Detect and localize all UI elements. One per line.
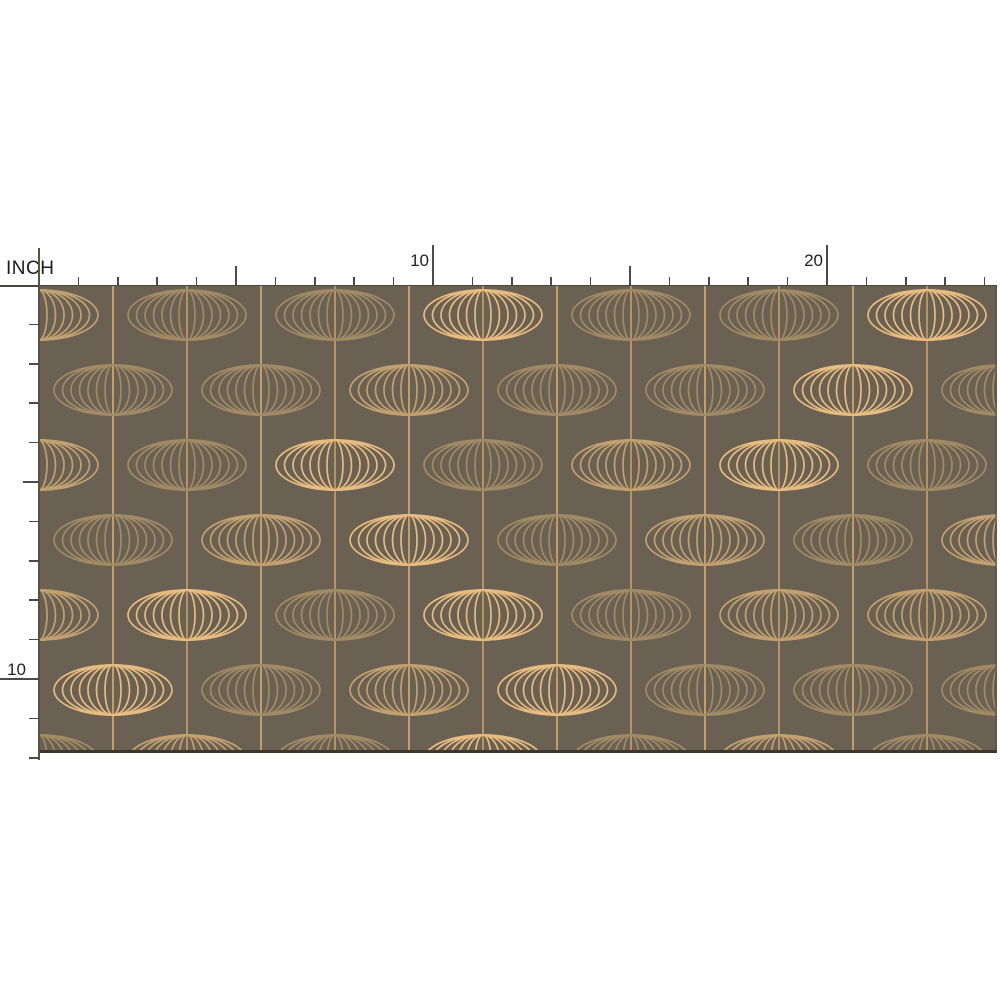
ruler-top-tick bbox=[353, 277, 355, 285]
ruler-top-tick bbox=[984, 277, 986, 285]
ruler-left-tick bbox=[29, 324, 39, 326]
fabric-swatch bbox=[40, 286, 997, 752]
ruler-left-tick bbox=[29, 639, 39, 641]
ruler-top-tick bbox=[747, 277, 749, 285]
ruler-top-number: 10 bbox=[407, 251, 429, 271]
ruler-left-number: 10 bbox=[2, 660, 26, 680]
ruler-left-tick bbox=[29, 363, 39, 365]
ruler-left-tick bbox=[29, 442, 39, 444]
ruler-top-tick bbox=[826, 245, 828, 285]
ruler-left-tick bbox=[29, 521, 39, 523]
ruler-top-tick bbox=[275, 277, 277, 285]
ruler-left-tick bbox=[29, 718, 39, 720]
ruler-top-tick bbox=[472, 277, 474, 285]
ruler-top-tick bbox=[314, 277, 316, 285]
ruler-top-tick bbox=[432, 245, 434, 285]
swatch-right-edge-shadow bbox=[995, 286, 997, 751]
ruler-top-tick bbox=[787, 277, 789, 285]
ruler-top-tick bbox=[905, 277, 907, 285]
ruler-top-tick bbox=[117, 277, 119, 285]
ruler-top-tick bbox=[590, 277, 592, 285]
ruler-top-tick bbox=[669, 277, 671, 285]
ruler-top-number: 20 bbox=[801, 251, 823, 271]
ruler-left-tick bbox=[23, 481, 39, 483]
ruler-left-tick bbox=[29, 560, 39, 562]
ruler-top-tick bbox=[511, 277, 513, 285]
ruler-top-tick bbox=[944, 277, 946, 285]
ruler-top-tick bbox=[629, 266, 631, 285]
ruler-top-tick bbox=[708, 277, 710, 285]
ruler-top-tick bbox=[235, 266, 237, 285]
swatch-bottom-edge-shadow bbox=[40, 750, 997, 753]
ruler-left-tick bbox=[29, 757, 39, 759]
ruler-unit-label: INCH bbox=[6, 258, 54, 280]
fabric-preview-page: INCH 102010 bbox=[0, 0, 1000, 1000]
ruler-top-tick bbox=[866, 277, 868, 285]
ruler-top-tick bbox=[78, 277, 80, 285]
ruler-top-tick bbox=[550, 277, 552, 285]
ruler-left-tick bbox=[29, 402, 39, 404]
ruler-left-tick bbox=[29, 599, 39, 601]
ruler-top-tick bbox=[393, 277, 395, 285]
ruler-top-tick bbox=[156, 277, 158, 285]
ruler-top-tick bbox=[196, 277, 198, 285]
